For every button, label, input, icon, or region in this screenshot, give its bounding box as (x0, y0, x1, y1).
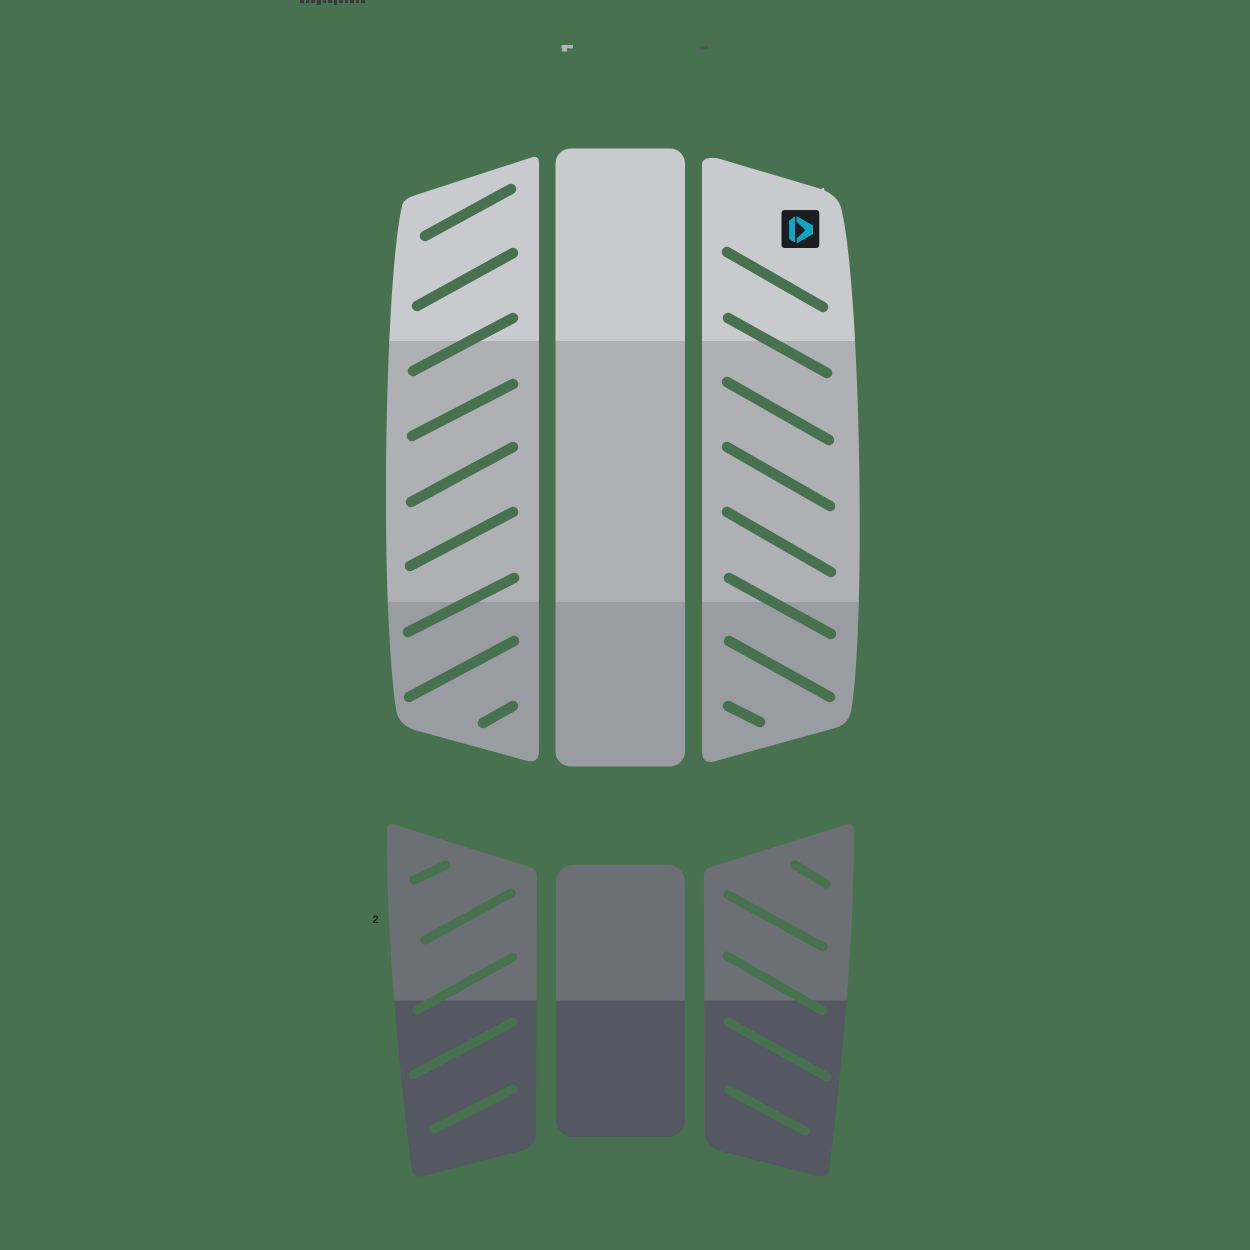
svg-text:2: 2 (373, 914, 379, 926)
